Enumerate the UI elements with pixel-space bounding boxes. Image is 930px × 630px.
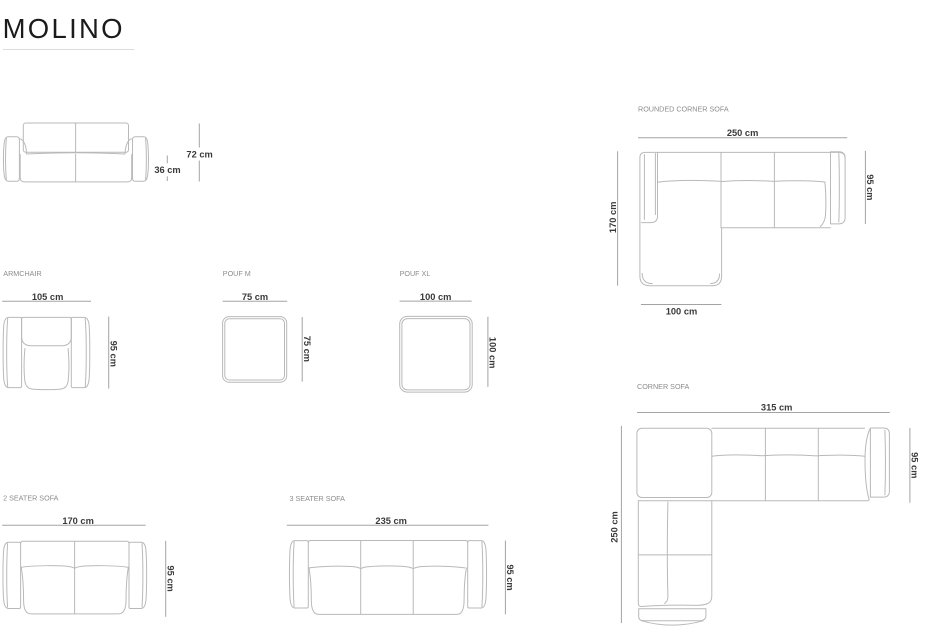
svg-text:POUF XL: POUF XL [400,269,431,278]
svg-text:250 cm: 250 cm [609,511,619,543]
svg-text:100 cm: 100 cm [666,307,698,317]
svg-text:100 cm: 100 cm [420,292,452,302]
svg-text:95 cm: 95 cm [865,174,875,200]
svg-text:ARMCHAIR: ARMCHAIR [3,269,41,278]
svg-text:3 SEATER SOFA: 3 SEATER SOFA [290,494,346,503]
svg-text:170 cm: 170 cm [62,516,94,526]
svg-text:CORNER SOFA: CORNER SOFA [637,382,690,391]
svg-text:95 cm: 95 cm [505,564,515,590]
svg-text:170 cm: 170 cm [608,202,618,234]
svg-text:95 cm: 95 cm [910,452,920,478]
svg-text:75 cm: 75 cm [302,336,312,362]
svg-text:250 cm: 250 cm [727,128,759,138]
svg-text:95 cm: 95 cm [166,565,176,591]
svg-text:105 cm: 105 cm [32,292,64,302]
svg-text:POUF M: POUF M [223,269,251,278]
svg-text:2 SEATER SOFA: 2 SEATER SOFA [3,493,59,502]
svg-text:36 cm: 36 cm [154,165,180,175]
svg-text:MOLINO: MOLINO [3,13,125,44]
svg-text:75 cm: 75 cm [242,292,268,302]
svg-text:ROUNDED CORNER SOFA: ROUNDED CORNER SOFA [638,104,729,113]
svg-text:235 cm: 235 cm [375,516,407,526]
svg-text:95 cm: 95 cm [109,341,119,367]
svg-text:72 cm: 72 cm [186,149,212,159]
svg-text:100 cm: 100 cm [488,337,498,369]
svg-text:315 cm: 315 cm [761,402,793,412]
